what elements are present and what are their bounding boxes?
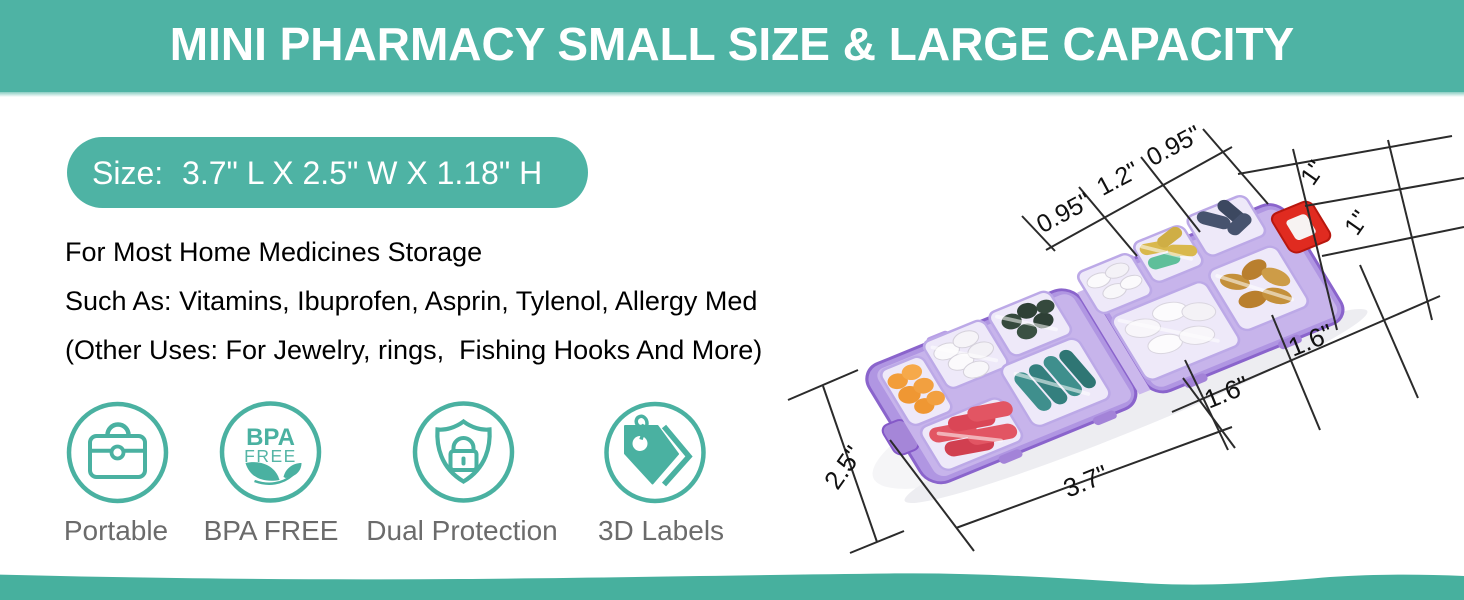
svg-text:1": 1"	[1339, 206, 1375, 241]
svg-text:BPA FREE: BPA FREE	[204, 515, 339, 546]
svg-text:Dual Protection: Dual Protection	[366, 515, 557, 546]
svg-text:0.95": 0.95"	[1142, 120, 1206, 172]
svg-text:Portable: Portable	[64, 515, 168, 546]
svg-text:0.95": 0.95"	[1032, 187, 1096, 239]
svg-text:2.5": 2.5"	[818, 440, 869, 494]
svg-text:3.7": 3.7"	[1059, 459, 1112, 504]
svg-text:1.2": 1.2"	[1092, 156, 1144, 201]
svg-text:1": 1"	[1295, 156, 1331, 191]
svg-text:3D Labels: 3D Labels	[598, 515, 724, 546]
